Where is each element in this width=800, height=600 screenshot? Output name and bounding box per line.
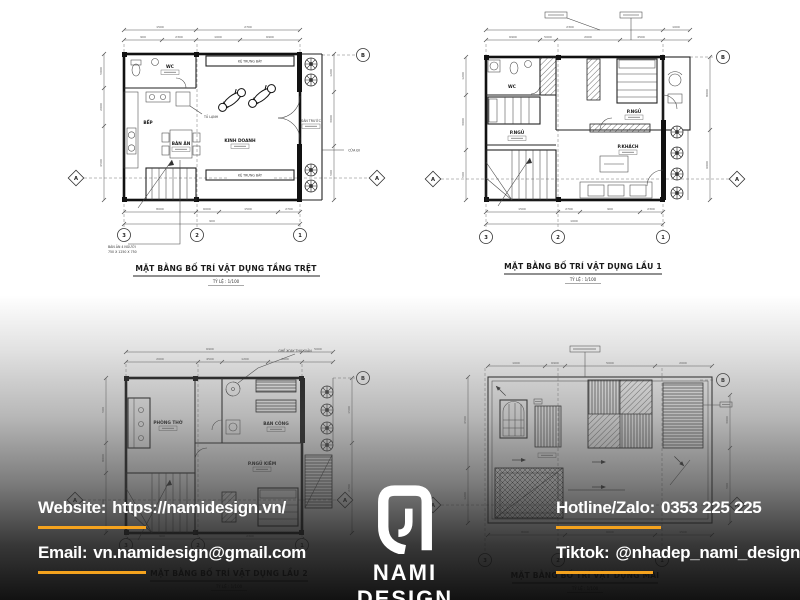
callout-notes: [545, 12, 642, 40]
svg-text:1: 1: [661, 235, 665, 241]
label-front-yard: SÂN TRƯỚC: [301, 118, 321, 123]
floor-plan-level1: 23001000 6900500020004500 1200 3000 500 …: [408, 8, 768, 290]
svg-text:TỶ LỆ : 1/100: TỶ LỆ : 1/100: [212, 279, 240, 284]
note-dining-table: BÀN ĂN 4 NGƯỜI 750 X 1250 X 750: [108, 160, 180, 254]
room-business: KỆ TRƯNG BÀY KỆ TRƯNG BÀY KINH DOANH: [206, 56, 300, 180]
svg-text:A: A: [735, 177, 739, 183]
svg-text:2300: 2300: [566, 25, 574, 29]
svg-text:TỶ LỆ : 1/100: TỶ LỆ : 1/100: [215, 584, 243, 589]
svg-text:1200: 1200: [329, 69, 333, 77]
svg-text:2300: 2300: [647, 207, 655, 211]
svg-text:2000: 2000: [679, 361, 687, 365]
svg-text:3000: 3000: [329, 115, 333, 123]
motorbike-icon: [216, 85, 247, 113]
svg-text:A: A: [343, 498, 347, 504]
svg-text:6900: 6900: [206, 347, 214, 351]
label-bedroom: P.NGỦ KIÊM: [248, 459, 276, 467]
plant-icon: [671, 187, 683, 199]
svg-text:B: B: [721, 55, 725, 61]
svg-text:A: A: [74, 176, 78, 182]
svg-text:2000: 2000: [156, 357, 164, 361]
room-living: P.KHÁCH: [580, 124, 663, 198]
room-bedroom-1: P.NGỦ: [488, 97, 540, 141]
plant-icon: [305, 164, 317, 176]
svg-text:MẶT BẰNG BỐ TRÍ VẬT DỤNG TẦNG: MẶT BẰNG BỐ TRÍ VẬT DỤNG TẦNG TRỆT: [135, 263, 317, 273]
svg-text:3000: 3000: [461, 118, 465, 126]
label-business: KINH DOANH: [224, 138, 256, 144]
svg-text:TỶ LỆ : 1/100: TỶ LỆ : 1/100: [569, 277, 597, 282]
svg-text:2700: 2700: [565, 207, 573, 211]
caption-level1: MẶT BẰNG BỐ TRÍ VẬT DỤNG LẦU 1 TỶ LỆ : 1…: [504, 261, 662, 284]
plants: [321, 386, 333, 451]
svg-text:1000: 1000: [512, 361, 520, 365]
svg-text:6000: 6000: [606, 530, 614, 534]
label-bedroom-1: P.NGỦ: [510, 128, 525, 136]
poster-floor-plans: 15002700 900230010006900 5000 2000 4500 …: [0, 0, 800, 600]
floor-plan-level2: 69005000 2000450012003000 500 8000 6000 …: [44, 308, 390, 590]
room-worship: PHÒNG THỜ: [128, 398, 183, 448]
svg-text:1500: 1500: [244, 207, 252, 211]
caption-level2: MẶT BẰNG BỐ TRÍ VẬT DỤNG LẦU 2 TỶ LỆ : 1…: [150, 568, 308, 591]
svg-text:750 X 1250 X 750: 750 X 1250 X 750: [108, 250, 137, 254]
svg-text:A: A: [73, 498, 77, 504]
svg-text:B: B: [361, 376, 365, 382]
svg-text:A: A: [375, 176, 379, 182]
svg-text:BÀN ĂN 4 NGƯỜI: BÀN ĂN 4 NGƯỜI: [108, 244, 136, 249]
svg-text:2: 2: [556, 558, 560, 564]
svg-text:1500: 1500: [156, 25, 164, 29]
room-bedroom-2: P.NGỦ: [587, 59, 657, 130]
plant-icon: [321, 439, 333, 451]
plant-icon: [671, 147, 683, 159]
svg-text:500: 500: [101, 407, 105, 413]
room-bedroom: P.NGỦ KIÊM: [195, 448, 298, 526]
balcony: BAN CÔNG: [212, 380, 296, 434]
roof-panel-right: [663, 383, 732, 448]
svg-text:3: 3: [124, 543, 128, 549]
svg-text:2700: 2700: [244, 25, 252, 29]
label-entry-door: CỬA ĐI: [348, 148, 360, 153]
svg-text:5000: 5000: [99, 67, 103, 75]
svg-text:4500: 4500: [463, 416, 467, 424]
svg-text:GHẾ XOAY THƯ GIÃN: GHẾ XOAY THƯ GIÃN: [278, 347, 312, 353]
svg-text:MẶT BẰNG BỐ TRÍ VẬT DỤNG MÁI: MẶT BẰNG BỐ TRÍ VẬT DỤNG MÁI: [511, 570, 660, 580]
svg-text:2000: 2000: [584, 35, 592, 39]
svg-text:1: 1: [298, 233, 302, 239]
svg-text:1200: 1200: [241, 357, 249, 361]
svg-text:1000: 1000: [672, 25, 680, 29]
label-wc: WC: [166, 64, 174, 70]
svg-text:1000: 1000: [214, 35, 222, 39]
svg-text:6900: 6900: [509, 35, 517, 39]
plant-icon: [305, 180, 317, 192]
plants: [671, 126, 683, 199]
plant-icon: [671, 126, 683, 138]
svg-text:4500: 4500: [206, 357, 214, 361]
svg-text:4500: 4500: [637, 35, 645, 39]
svg-text:5000: 5000: [544, 35, 552, 39]
svg-text:B: B: [721, 378, 725, 384]
svg-text:1500: 1500: [347, 406, 351, 414]
floor-plan-roof: 1000690050002000 4500 1200 3000 500 8000…: [408, 308, 768, 595]
svg-text:2: 2: [556, 235, 560, 241]
floor-plan-ground: 15002700 900230010006900 5000 2000 4500 …: [44, 8, 390, 290]
svg-text:6900: 6900: [551, 361, 559, 365]
grid-bubbles: 3 2 1 A A B: [425, 51, 745, 244]
svg-text:2300: 2300: [246, 534, 254, 538]
svg-text:1: 1: [300, 543, 304, 549]
balcony: [663, 72, 682, 109]
plant-icon: [305, 74, 317, 86]
caption-ground-floor: MẶT BẰNG BỐ TRÍ VẬT DỤNG TẦNG TRỆT TỶ LỆ…: [133, 263, 320, 286]
label-wc: WC: [508, 84, 516, 90]
skylight-window: [500, 400, 527, 438]
svg-text:A: A: [431, 177, 435, 183]
label-fridge: TỦ LẠNH: [203, 114, 219, 119]
svg-text:A: A: [735, 503, 739, 509]
roof-panel-checker: [588, 380, 652, 448]
svg-text:TỶ LỆ : 1/100: TỶ LỆ : 1/100: [571, 586, 599, 591]
svg-text:900: 900: [159, 534, 165, 538]
svg-text:6000: 6000: [101, 499, 105, 507]
svg-text:900: 900: [140, 35, 146, 39]
svg-text:1200: 1200: [463, 492, 467, 500]
svg-text:5000: 5000: [314, 347, 322, 351]
svg-text:2700: 2700: [347, 484, 351, 492]
label-balcony: BAN CÔNG: [263, 420, 289, 427]
label-kitchen: BẾP: [143, 118, 152, 126]
stairs: [126, 473, 195, 540]
label-display-shelf-top: KỆ TRƯNG BÀY: [238, 58, 262, 63]
svg-text:500: 500: [725, 483, 729, 489]
roof-panel-small: [534, 399, 561, 458]
svg-text:3: 3: [484, 235, 488, 241]
svg-text:1: 1: [660, 558, 664, 564]
svg-text:1000: 1000: [570, 219, 578, 223]
svg-text:4500: 4500: [99, 159, 103, 167]
svg-text:8000: 8000: [156, 207, 164, 211]
room-wc: WC: [131, 59, 186, 89]
stairs: [486, 150, 556, 206]
svg-text:A: A: [431, 503, 435, 509]
svg-text:3: 3: [122, 233, 126, 239]
svg-text:3: 3: [483, 558, 487, 564]
label-living: P.KHÁCH: [618, 143, 639, 150]
svg-text:5000: 5000: [606, 361, 614, 365]
label-worship: PHÒNG THỜ: [153, 419, 183, 426]
svg-text:2700: 2700: [285, 207, 293, 211]
label-dining: BÀN ĂN: [172, 140, 191, 147]
room-wc: WC: [488, 60, 540, 94]
svg-text:6900: 6900: [266, 35, 274, 39]
svg-text:2000: 2000: [99, 103, 103, 111]
svg-text:2300: 2300: [175, 35, 183, 39]
svg-text:500: 500: [329, 170, 333, 176]
svg-text:3000: 3000: [725, 416, 729, 424]
svg-text:1500: 1500: [518, 207, 526, 211]
svg-text:8000: 8000: [101, 454, 105, 462]
plant-icon: [305, 58, 317, 70]
svg-text:900: 900: [607, 207, 613, 211]
motorbike-icon: [246, 81, 277, 109]
label-bedroom-2: P.NGỦ: [627, 107, 642, 115]
svg-text:8000: 8000: [705, 89, 709, 97]
svg-text:1500: 1500: [679, 530, 687, 534]
label-display-shelf-bottom: KỆ TRƯNG BÀY: [238, 172, 262, 177]
svg-text:2: 2: [195, 233, 199, 239]
plant-icon: [321, 404, 333, 416]
roof-ladder: [305, 455, 332, 508]
svg-text:1200: 1200: [461, 72, 465, 80]
plant-icon: [321, 386, 333, 398]
grid-bubbles: 3 2 1 A A B: [68, 49, 385, 242]
svg-text:MẶT BẰNG BỐ TRÍ VẬT DỤNG LẦU 1: MẶT BẰNG BỐ TRÍ VẬT DỤNG LẦU 1: [504, 261, 662, 271]
svg-text:8000: 8000: [521, 530, 529, 534]
stairwell-skylight: [495, 468, 563, 518]
plant-icon: [671, 168, 683, 180]
svg-text:MẶT BẰNG BỐ TRÍ VẬT DỤNG LẦU 2: MẶT BẰNG BỐ TRÍ VẬT DỤNG LẦU 2: [150, 568, 308, 578]
svg-text:6000: 6000: [203, 207, 211, 211]
room-dining: BÀN ĂN: [162, 130, 200, 158]
svg-text:900: 900: [209, 219, 215, 223]
plant-icon: [321, 422, 333, 434]
svg-text:2: 2: [196, 543, 200, 549]
svg-text:B: B: [361, 53, 365, 59]
caption-roof: MẶT BẰNG BỐ TRÍ VẬT DỤNG MÁI TỶ LỆ : 1/1…: [511, 570, 660, 593]
svg-text:500: 500: [461, 172, 465, 178]
svg-text:6000: 6000: [705, 161, 709, 169]
